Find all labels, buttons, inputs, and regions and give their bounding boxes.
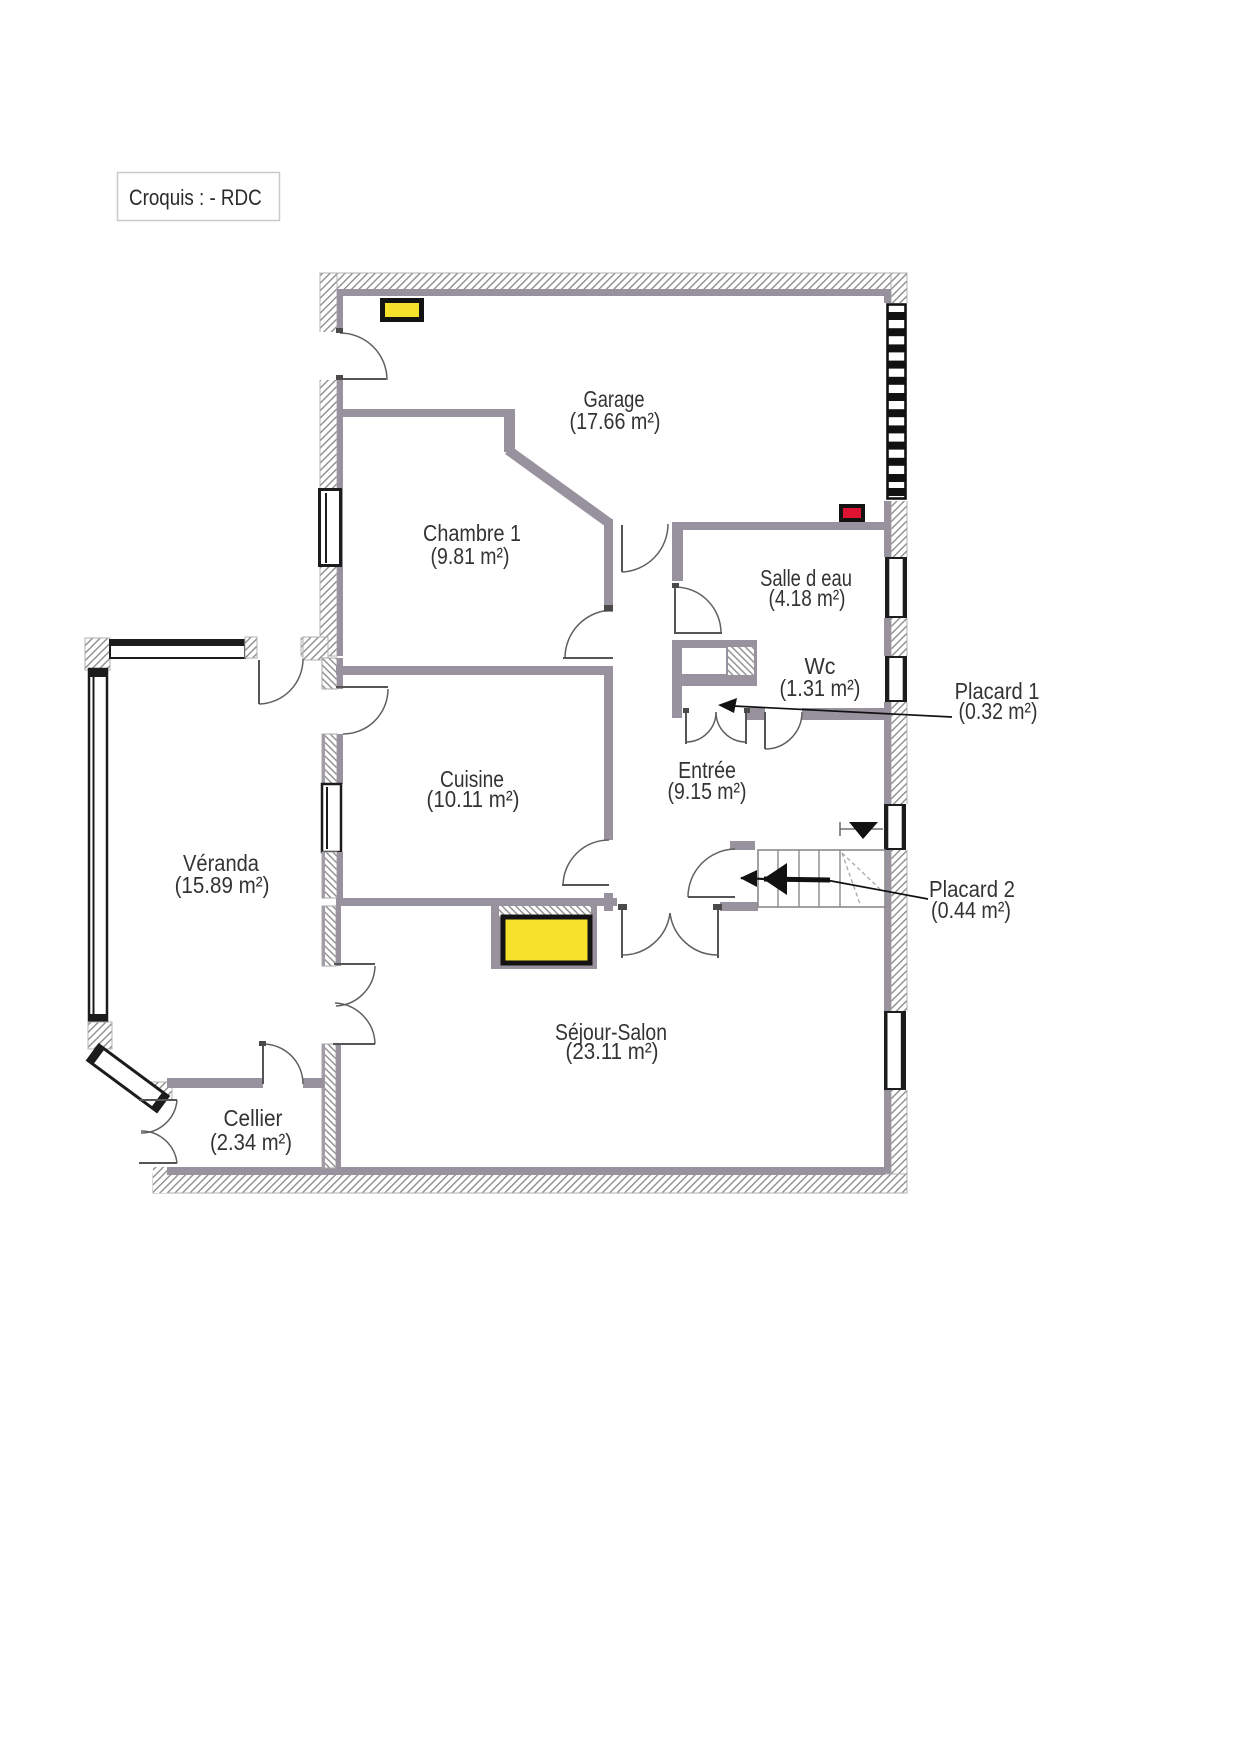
svg-text:(10.11 m²): (10.11 m²) [427,786,520,812]
svg-text:(1.31 m²): (1.31 m²) [780,676,861,702]
svg-text:(0.32 m²): (0.32 m²) [959,698,1038,724]
svg-text:(9.15 m²): (9.15 m²) [668,778,747,804]
svg-text:(9.81 m²): (9.81 m²) [431,543,510,569]
svg-text:Cellier: Cellier [224,1105,283,1131]
svg-text:(23.11 m²): (23.11 m²) [566,1038,659,1064]
svg-text:(15.89 m²): (15.89 m²) [175,872,270,898]
svg-text:(0.44 m²): (0.44 m²) [931,898,1011,924]
svg-text:(2.34 m²): (2.34 m²) [210,1129,292,1156]
svg-text:(4.18 m²): (4.18 m²) [769,586,846,611]
svg-text:Croquis : - RDC: Croquis : - RDC [129,186,262,211]
svg-text:(17.66 m²): (17.66 m²) [570,409,661,435]
